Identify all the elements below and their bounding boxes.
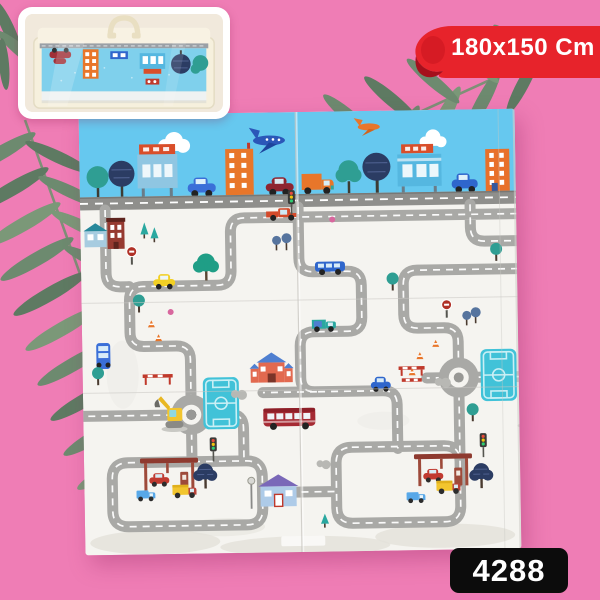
playmat-photo: [79, 109, 522, 556]
size-ribbon: 180x150 Cm: [400, 22, 600, 80]
blue-bus-icon: [96, 343, 110, 369]
soccer-field-icon: [203, 377, 240, 430]
tower-building-icon: [225, 143, 254, 195]
product-code-text: 4288: [473, 553, 546, 589]
soccer-field-icon: [480, 349, 517, 402]
inset-photo: [25, 14, 223, 112]
inset-thumbnail: [18, 7, 230, 119]
folded-mat-bag-icon: [34, 18, 214, 108]
product-code-badge: 4288: [450, 548, 568, 593]
product-photo-stage: 180x150 Cm 4288: [0, 0, 600, 600]
brick-building-icon: [106, 218, 125, 249]
size-label: 180x150 Cm: [450, 22, 596, 74]
tower-building-icon: [485, 149, 510, 191]
